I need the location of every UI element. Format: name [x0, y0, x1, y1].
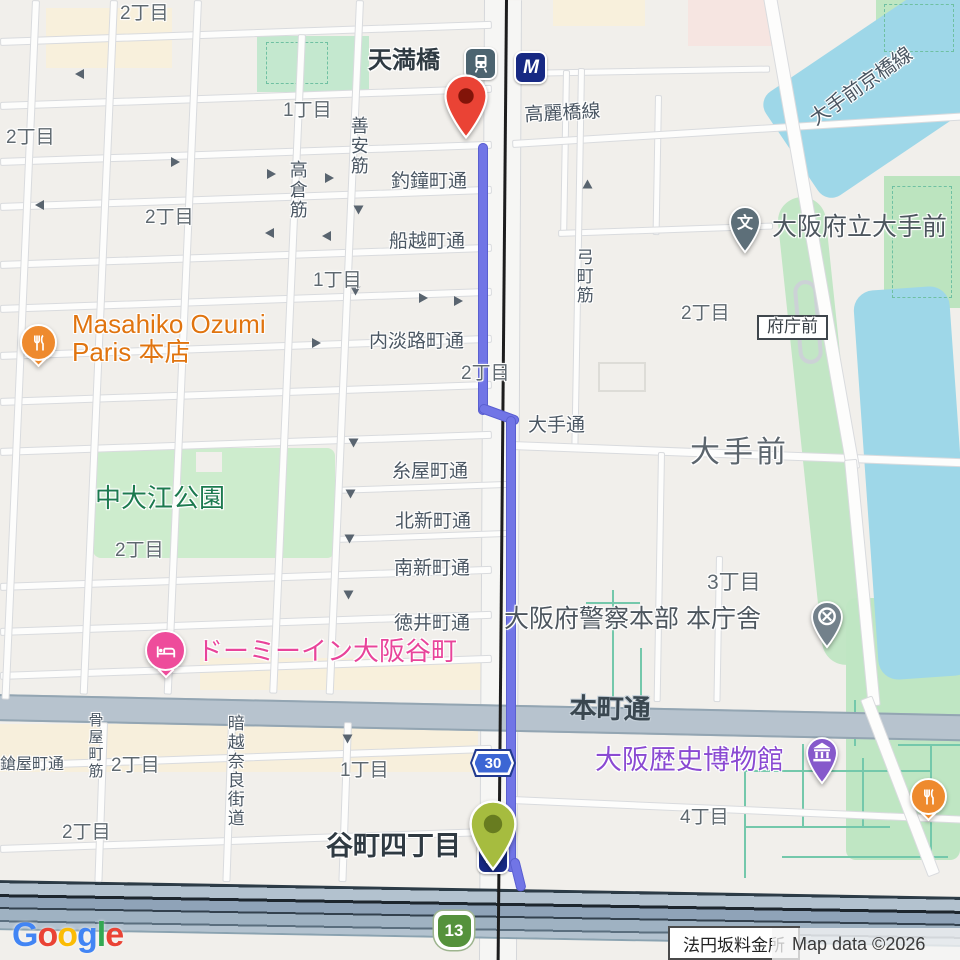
museum-pin[interactable] [805, 737, 839, 785]
park-path-dashed [892, 186, 952, 298]
one-way-arrow-icon [419, 293, 428, 303]
district-label: 2丁目 [111, 756, 160, 777]
one-way-arrow-icon [325, 173, 334, 183]
street-label: 鎗屋町通 [0, 756, 64, 774]
poi-label[interactable]: 大阪府警察本部 本庁舎 [504, 606, 761, 634]
street-label: 糸屋町通 [392, 462, 468, 483]
one-way-arrow-icon [344, 591, 354, 600]
building-outline [598, 362, 646, 392]
one-way-arrow-icon [345, 535, 355, 544]
origin-pin[interactable] [468, 800, 518, 872]
google-logo-letter: G [12, 916, 37, 954]
google-logo[interactable]: Google [12, 916, 123, 955]
restaurant-pin[interactable] [910, 778, 947, 826]
road [0, 85, 492, 110]
road [0, 381, 492, 406]
one-way-arrow-icon [343, 735, 353, 744]
road [0, 141, 492, 166]
one-way-arrow-icon [312, 338, 321, 348]
poi-label-restaurant[interactable]: Masahiko Ozumi [72, 310, 266, 339]
route-30-shield: 30 [470, 749, 516, 777]
poi-label-restaurant[interactable]: Paris 本店 [72, 338, 190, 367]
one-way-arrow-icon [265, 228, 274, 238]
district-label: 1丁目 [313, 271, 362, 292]
train-icon [469, 52, 493, 76]
one-way-arrow-icon [267, 169, 276, 179]
one-way-arrow-icon [354, 206, 364, 215]
park-path-dashed [884, 4, 954, 52]
one-way-arrow-icon [349, 439, 359, 448]
district-label: 2丁目 [145, 208, 194, 229]
hotel-pin[interactable] [145, 630, 186, 684]
route-number: 13 [445, 921, 464, 941]
street-label: 骨屋町筋 [86, 712, 103, 780]
one-way-arrow-icon [171, 157, 180, 167]
street-label: 高麗橋線 [524, 102, 601, 127]
google-logo-letter: o [37, 916, 57, 954]
road [654, 452, 665, 702]
road [515, 66, 770, 77]
road-name-label: 本町通 [569, 694, 651, 725]
station-label[interactable]: 天満橋 [368, 48, 440, 74]
map-area-fill [688, 0, 772, 46]
road [653, 95, 662, 235]
road [269, 34, 306, 694]
area-label: 大手前 [690, 436, 789, 469]
fork-knife-icon [29, 333, 49, 353]
street-label: 南新町通 [394, 559, 470, 580]
park-walkway [586, 602, 640, 604]
street-label: 徳井町通 [394, 614, 470, 635]
district-label: 1丁目 [340, 761, 389, 782]
metro-logo-m: M [523, 57, 538, 79]
one-way-arrow-icon [35, 200, 44, 210]
osaka-metro-icon[interactable]: M [514, 51, 547, 84]
one-way-arrow-icon [454, 296, 463, 306]
one-way-arrow-icon [346, 490, 356, 499]
park-label[interactable]: 中大江公園 [95, 484, 225, 513]
restaurant-pin[interactable] [20, 324, 57, 372]
street-label: 大手通 [528, 416, 585, 437]
street-label: 北新町通 [395, 512, 471, 533]
map-area-fill [196, 452, 222, 472]
one-way-arrow-icon [322, 231, 331, 241]
google-logo-letter: l [97, 916, 105, 954]
street-label: 船越町通 [389, 232, 465, 253]
bed-icon [155, 640, 177, 662]
park-walkway [898, 744, 960, 746]
route-number: 30 [485, 755, 502, 772]
map-canvas[interactable]: M M 文 [0, 0, 960, 960]
street-label: 善安筋 [348, 116, 368, 176]
district-label: 3丁目 [707, 571, 761, 594]
district-label: 2丁目 [62, 823, 111, 844]
road [560, 70, 570, 235]
district-label: 2丁目 [120, 4, 169, 25]
poi-label-museum[interactable]: 大阪歴史博物館 [595, 746, 784, 776]
bus-stop-label[interactable]: 府庁前 [757, 315, 828, 340]
street-label: 暗越奈良街道 [224, 714, 243, 828]
svg-text:文: 文 [737, 213, 754, 232]
poi-label-hotel[interactable]: ドーミーイン大阪谷町 [197, 637, 457, 666]
street-label: 内淡路町通 [369, 332, 464, 353]
street-label: 高倉筋 [287, 160, 307, 220]
station-label[interactable]: 谷町四丁目 [326, 832, 461, 862]
police-pin[interactable] [810, 601, 844, 649]
destination-pin[interactable] [444, 74, 488, 140]
one-way-arrow-icon [75, 69, 84, 79]
fork-knife-icon [919, 787, 939, 807]
district-label: 2丁目 [115, 541, 164, 562]
map-attribution: Map data ©2026 [772, 928, 960, 960]
google-logo-letter: g [77, 916, 97, 954]
route-13-shield: 13 [434, 911, 474, 950]
google-logo-letter: o [57, 916, 77, 954]
map-area-fill [553, 0, 645, 26]
district-label: 2丁目 [681, 304, 730, 325]
park-walkway [744, 770, 746, 878]
district-label: 4丁目 [680, 808, 729, 829]
poi-label[interactable]: 大阪府立大手前 [772, 214, 947, 242]
park-walkway [744, 826, 890, 828]
district-label: 2丁目 [6, 128, 55, 149]
district-label: 1丁目 [283, 101, 332, 122]
school-pin[interactable]: 文 [728, 206, 762, 254]
map-data-text: Map data ©2026 [792, 934, 925, 955]
street-label: 弓町筋 [573, 248, 592, 305]
street-label: 釣鐘町通 [391, 172, 467, 193]
google-logo-letter: e [105, 916, 123, 954]
district-label: 2丁目 [461, 364, 510, 385]
one-way-arrow-icon [583, 180, 593, 189]
